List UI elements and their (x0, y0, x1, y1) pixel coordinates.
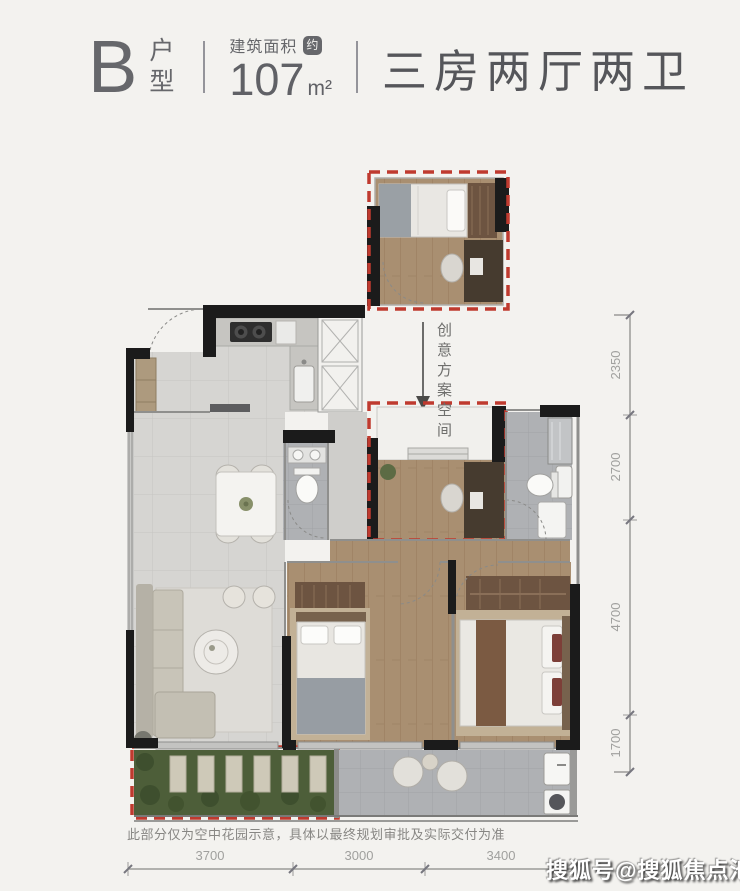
desk (464, 240, 503, 302)
main-unit (126, 305, 580, 821)
balcony (334, 748, 577, 818)
desk-chair (441, 254, 463, 282)
creative-space-arrow (416, 322, 430, 410)
living-room (134, 584, 275, 749)
stepping-stone (170, 756, 186, 792)
fridge (276, 321, 296, 344)
stepping-stone (282, 756, 298, 792)
bedroom-2 (287, 562, 453, 748)
dim-label: 1700 (608, 729, 623, 758)
headboard (562, 616, 570, 730)
stairwell (318, 316, 362, 412)
plant (380, 464, 396, 480)
blanket (297, 678, 365, 734)
dimension-right: 2350 2700 4700 1700 (608, 311, 637, 776)
floorplan-page: { "page": { "background": "#f3f2ef" }, "… (0, 0, 740, 891)
kitchen-sink (294, 366, 314, 402)
stool (223, 586, 245, 608)
entry-door-swing (150, 309, 205, 350)
dim-label: 3700 (196, 848, 225, 863)
toilet (296, 475, 318, 503)
dim-label: 2700 (608, 453, 623, 482)
watermark: 搜狐号@搜狐焦点池州站 (546, 853, 740, 885)
pillow (334, 626, 361, 644)
dim-label: 3400 (487, 848, 516, 863)
lounge-chair (393, 757, 423, 787)
pillow (301, 626, 328, 644)
headboard (296, 612, 366, 622)
chaise (155, 692, 215, 738)
detached-bedroom (367, 172, 509, 309)
toilet (527, 474, 553, 496)
master-bedroom (453, 562, 574, 748)
creative-space-label: 创意方案空间 (433, 322, 454, 442)
accent-pillow (552, 678, 562, 706)
bathtub (538, 502, 566, 538)
stool (253, 586, 275, 608)
coffee-table (194, 630, 238, 674)
dim-label: 4700 (608, 603, 623, 632)
dim-label: 2350 (608, 351, 623, 380)
dining-area (216, 465, 276, 543)
desk-chair (441, 484, 463, 512)
stepping-stone (310, 756, 326, 792)
accent-pillow (552, 634, 562, 662)
guest-bathroom (283, 443, 328, 540)
dim-label: 3000 (345, 848, 374, 863)
disclaimer-note: 此部分仅为空中花园示意，具体以最终规划审批及实际交付为准 (127, 824, 505, 843)
lounge-chair (437, 761, 467, 791)
floorplan-drawing: 3700 3000 3400 2350 2700 4700 1700 (0, 0, 740, 891)
bed-runner (476, 620, 506, 726)
laundry-sink (544, 753, 570, 785)
pillow (447, 190, 465, 231)
side-table (422, 754, 438, 770)
sofa-back (136, 584, 153, 738)
stepping-stone (226, 756, 242, 792)
bathroom-2 (506, 412, 572, 540)
stepping-stone (198, 756, 214, 792)
stepping-stone (254, 756, 270, 792)
dimension-bottom: 3700 3000 3400 (124, 848, 581, 876)
sky-garden (132, 747, 338, 818)
